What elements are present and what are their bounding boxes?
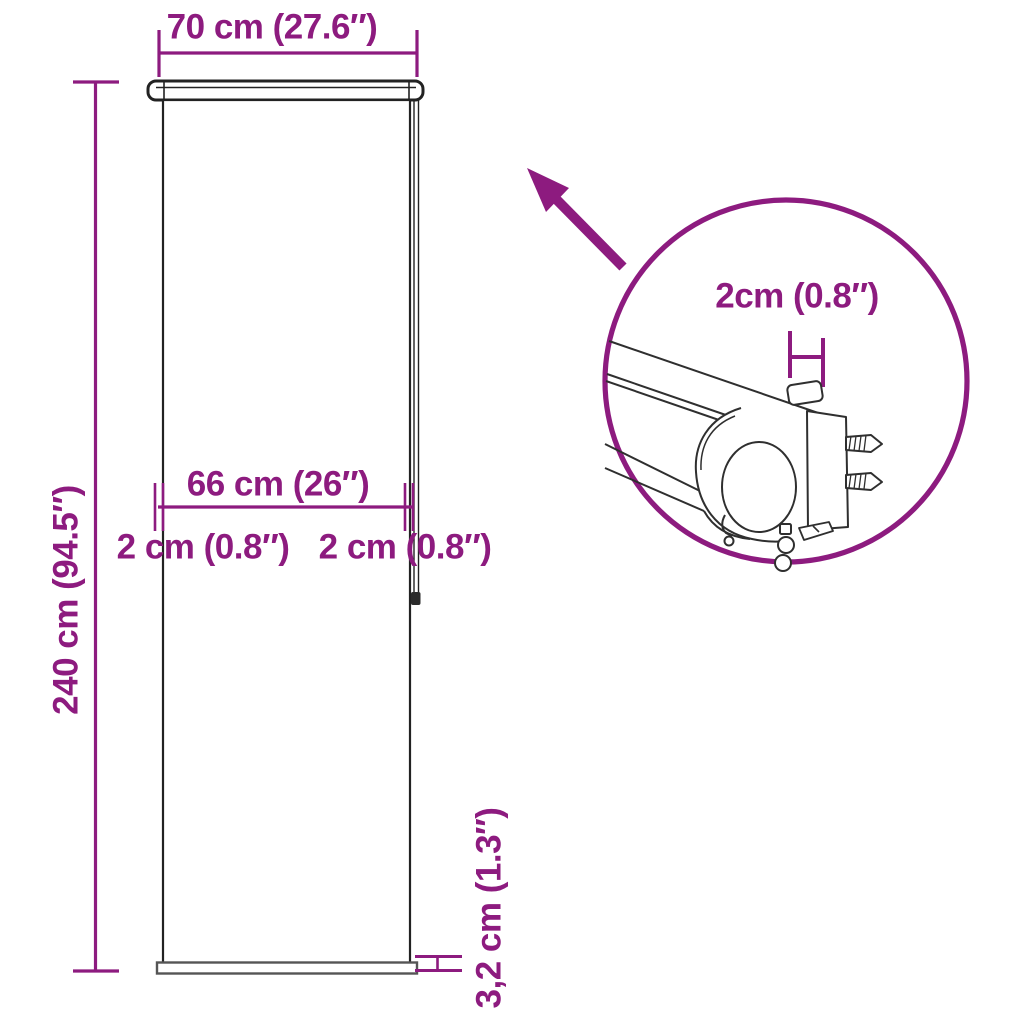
bottom-bar-height-label: 3,2 cm (1.3″) [472, 808, 507, 1009]
left-bracket-offset-label: 2 cm (0.8″) [117, 530, 290, 565]
cassette-bar [148, 81, 423, 100]
wall-plate [807, 411, 848, 530]
diagram-artwork [0, 0, 1024, 1024]
right-bracket-offset-label: 2 cm (0.8″) [319, 530, 492, 565]
mounting-screws [846, 435, 882, 490]
bracket-detail-drawing [605, 341, 882, 571]
product-dimension-diagram: 70 cm (27.6″) 240 cm (94.5″) 66 cm (26″)… [0, 0, 1024, 1024]
total-height-label: 240 cm (94.5″) [49, 485, 84, 715]
callout-arrow [527, 168, 623, 267]
bracket-depth-dimension [790, 331, 823, 387]
bracket-depth-label: 2cm (0.8″) [715, 279, 879, 314]
bottom-bar-dimension [415, 957, 462, 971]
inner-width-label: 66 cm (26″) [187, 467, 369, 502]
bottom-bar [157, 963, 417, 974]
mounting-tab [787, 380, 824, 405]
total-width-label: 70 cm (27.6″) [167, 10, 378, 45]
